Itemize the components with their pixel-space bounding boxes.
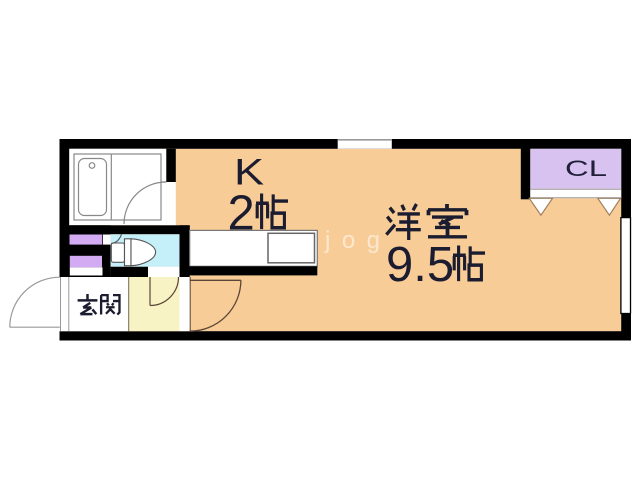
svg-text:9.5: 9.5: [386, 238, 454, 292]
svg-text:CL: CL: [565, 156, 607, 181]
svg-text:2: 2: [228, 187, 255, 241]
svg-text:jog: jog: [324, 227, 392, 254]
